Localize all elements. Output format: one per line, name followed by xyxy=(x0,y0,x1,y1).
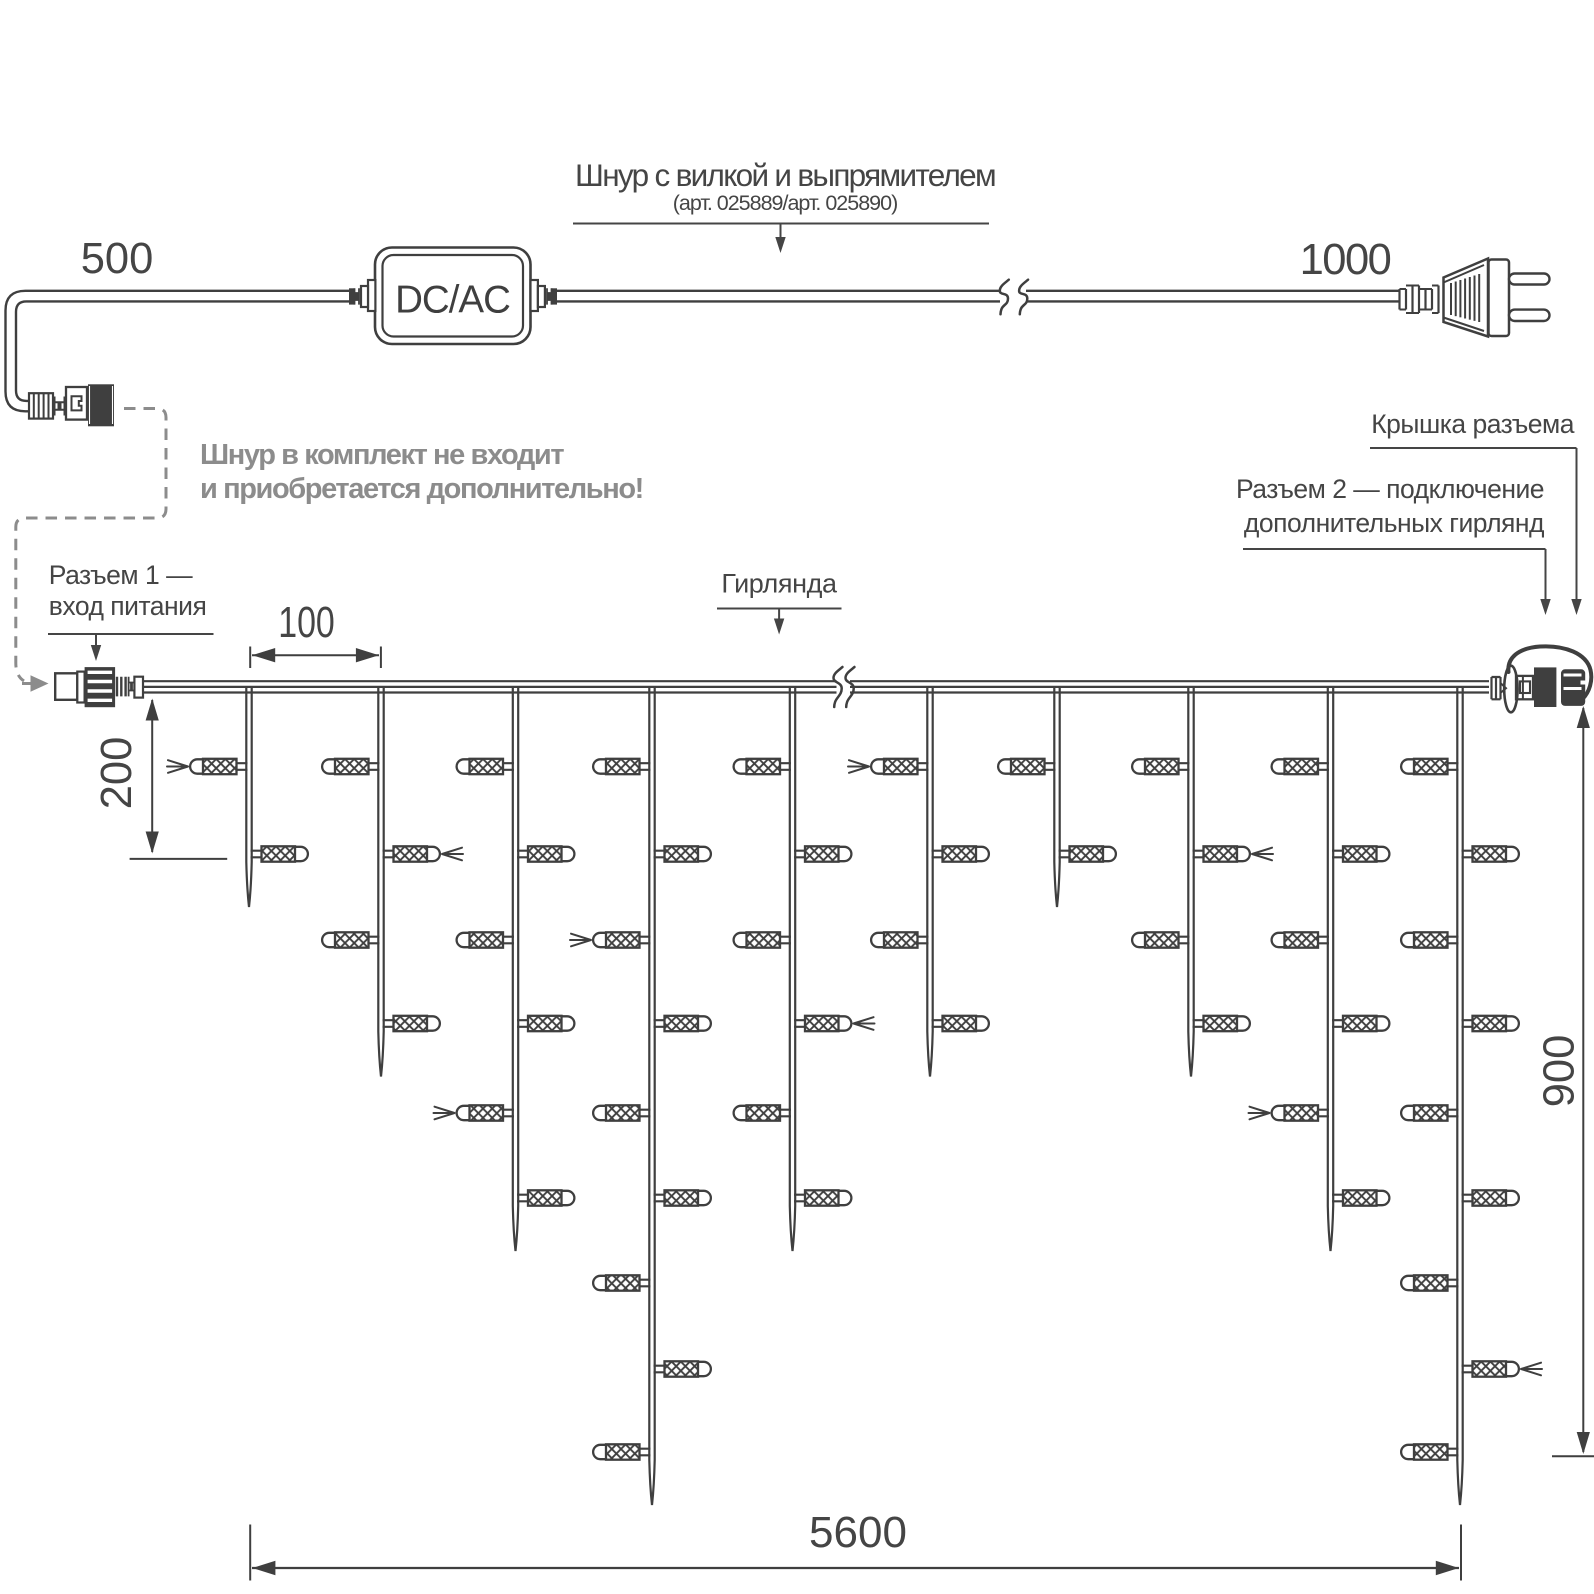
svg-text:Шнур в комплект не входит: Шнур в комплект не входит xyxy=(200,439,564,471)
svg-text:(арт. 025889/арт. 025890): (арт. 025889/арт. 025890) xyxy=(673,191,898,215)
svg-text:200: 200 xyxy=(93,737,141,810)
svg-text:500: 500 xyxy=(81,235,154,283)
svg-text:1000: 1000 xyxy=(1300,236,1391,284)
svg-text:Гирлянда: Гирлянда xyxy=(721,569,838,599)
svg-text:вход питания: вход питания xyxy=(49,591,207,621)
svg-text:и приобретается дополнительно!: и приобретается дополнительно! xyxy=(200,473,643,505)
svg-text:дополнительных гирлянд: дополнительных гирлянд xyxy=(1244,508,1545,538)
svg-text:Разъем 2 — подключение: Разъем 2 — подключение xyxy=(1236,474,1544,504)
svg-text:DC/AC: DC/AC xyxy=(395,279,510,322)
svg-text:Крышка разъема: Крышка разъема xyxy=(1371,409,1575,439)
svg-text:5600: 5600 xyxy=(809,1508,907,1557)
svg-text:900: 900 xyxy=(1536,1035,1584,1108)
svg-text:Шнур с вилкой и выпрямителем: Шнур с вилкой и выпрямителем xyxy=(575,157,995,193)
svg-text:Разъем 1 —: Разъем 1 — xyxy=(49,560,193,590)
svg-text:100: 100 xyxy=(278,599,335,647)
